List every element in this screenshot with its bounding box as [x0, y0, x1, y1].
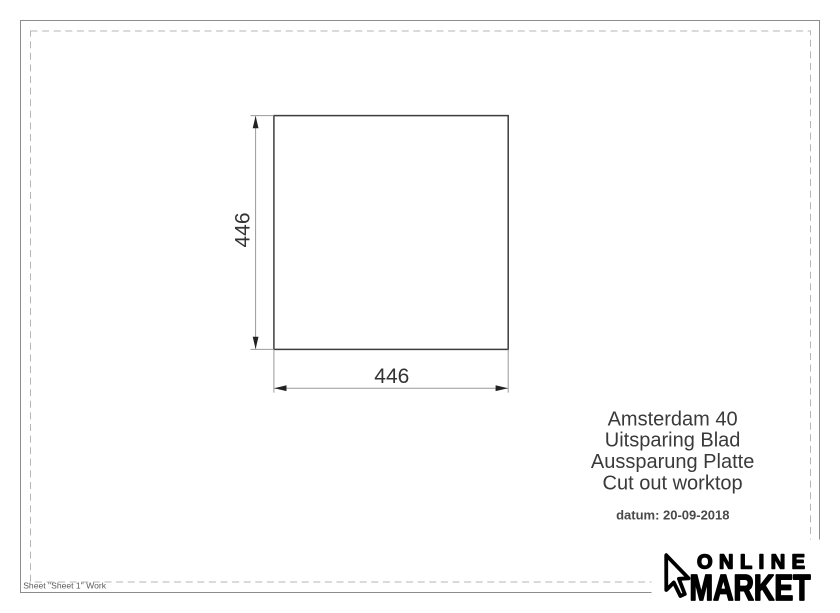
svg-text:446: 446 [232, 212, 255, 247]
svg-text:Sheet "Sheet 1" Work: Sheet "Sheet 1" Work [23, 581, 107, 591]
svg-text:446: 446 [374, 365, 409, 388]
svg-text:datum: 20-09-2018: datum: 20-09-2018 [616, 508, 729, 523]
svg-text:Amsterdam 40: Amsterdam 40 [608, 408, 738, 430]
svg-text:Uitsparing Blad: Uitsparing Blad [605, 430, 741, 452]
svg-text:Cut out worktop: Cut out worktop [603, 472, 743, 494]
svg-text:MARKET: MARKET [690, 567, 811, 608]
svg-text:Aussparung Platte: Aussparung Platte [591, 451, 754, 473]
